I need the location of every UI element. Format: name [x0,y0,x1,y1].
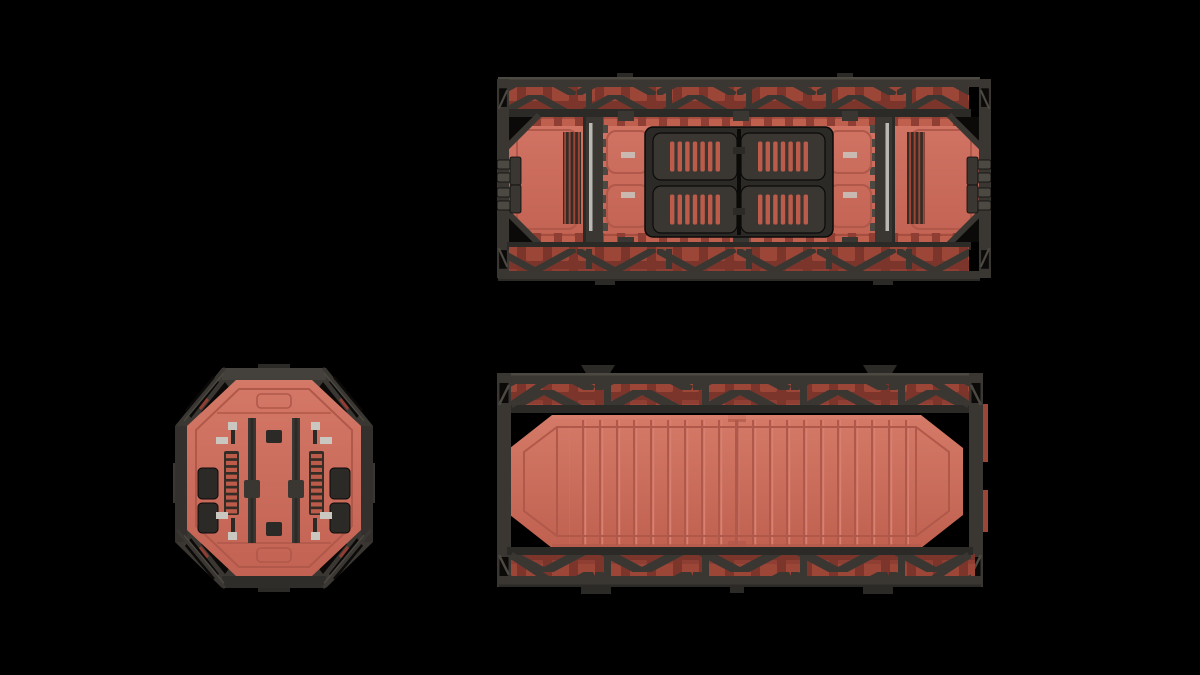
truss-frame-bottom [499,547,981,594]
truss-frame-bottom [498,242,980,285]
container-end-view [173,364,375,592]
vent-hatch [645,127,833,237]
container-side-view [497,364,989,594]
truss-frame-top [499,365,981,413]
truss-frame-top [498,73,980,117]
container-top-view [497,73,991,285]
render-viewport [0,0,1200,675]
side-panel [510,415,963,548]
